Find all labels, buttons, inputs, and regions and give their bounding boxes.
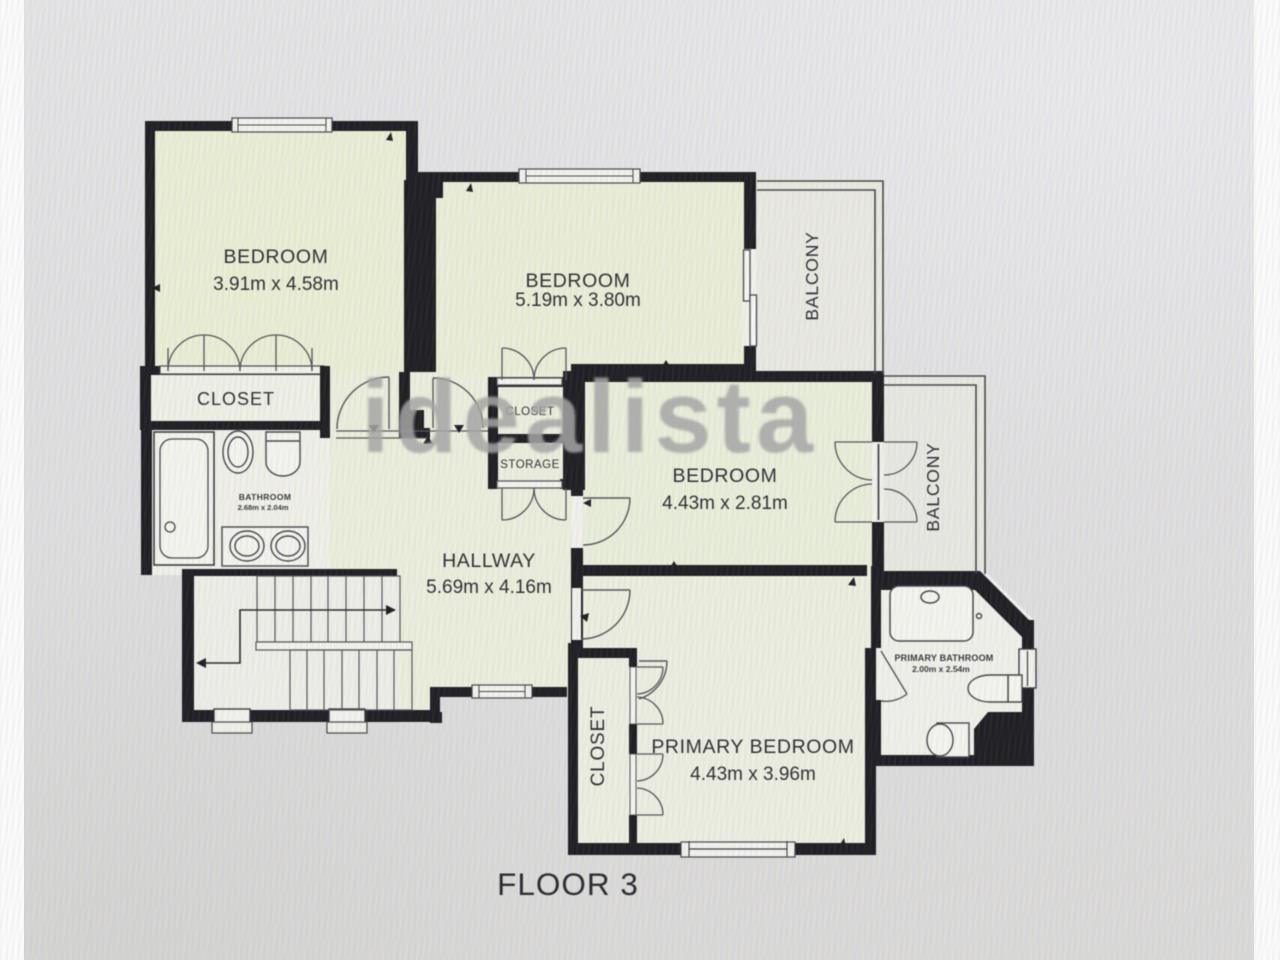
svg-text:PRIMARY BATHROOM: PRIMARY BATHROOM <box>894 653 993 663</box>
svg-text:BATHROOM: BATHROOM <box>239 492 292 502</box>
svg-text:BEDROOM: BEDROOM <box>224 246 329 268</box>
svg-text:BALCONY: BALCONY <box>802 231 822 320</box>
svg-text:FLOOR 3: FLOOR 3 <box>497 866 639 902</box>
svg-text:5.69m x 4.16m: 5.69m x 4.16m <box>426 577 552 598</box>
svg-text:CLOSET: CLOSET <box>588 706 609 787</box>
svg-text:4.43m x 2.81m: 4.43m x 2.81m <box>662 493 788 514</box>
svg-text:4.43m x 3.96m: 4.43m x 3.96m <box>690 764 816 785</box>
svg-text:HALLWAY: HALLWAY <box>442 550 536 572</box>
svg-text:2.00m x 2.54m: 2.00m x 2.54m <box>912 664 970 674</box>
svg-text:BALCONY: BALCONY <box>923 442 943 531</box>
svg-text:3.91m x 4.58m: 3.91m x 4.58m <box>213 274 339 295</box>
svg-text:CLOSET: CLOSET <box>197 389 275 409</box>
svg-text:2.68m x 2.04m: 2.68m x 2.04m <box>238 503 289 512</box>
svg-text:PRIMARY BEDROOM: PRIMARY BEDROOM <box>651 736 854 758</box>
svg-text:BEDROOM: BEDROOM <box>526 270 631 292</box>
svg-text:5.19m x 3.80m: 5.19m x 3.80m <box>515 290 641 311</box>
